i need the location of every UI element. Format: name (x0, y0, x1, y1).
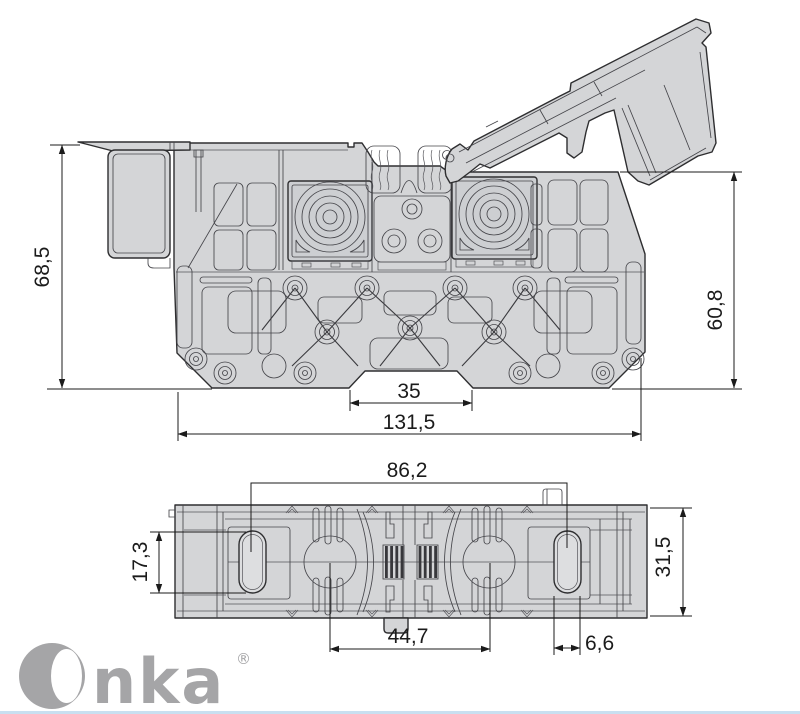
dim-text-hole-spacing: 86,2 (387, 459, 428, 482)
screenshot-page: 68,5 60,8 35 131,5 (0, 0, 800, 714)
right-coil-chamber (452, 177, 537, 267)
mounting-flange (78, 142, 190, 268)
top-latch-tab (543, 489, 562, 505)
plan-view: 86,2 17,3 31,5 44,7 6,6 (129, 459, 692, 655)
onka-logo-text: nka (92, 645, 225, 714)
dim-rail-notch: 35 (350, 380, 472, 411)
side-body-outline (174, 143, 645, 388)
onka-logo-mark (19, 643, 85, 709)
registered-trademark-icon: ® (236, 650, 251, 668)
dim-text-total-length: 131,5 (383, 411, 436, 434)
technical-drawing-canvas: 68,5 60,8 35 131,5 (0, 0, 800, 714)
onka-logo: nka ® (19, 643, 251, 714)
dim-text-slot-height: 17,3 (129, 542, 152, 583)
dim-text-total-width: 31,5 (652, 537, 675, 578)
dim-text-height-left: 68,5 (31, 247, 54, 288)
left-coil-chamber (288, 181, 372, 269)
side-view: 68,5 60,8 35 131,5 (31, 19, 742, 441)
dim-text-rail-notch: 35 (397, 380, 420, 403)
dim-text-slot-width: 6,6 (585, 632, 614, 655)
dim-total-width: 31,5 (650, 508, 692, 616)
dim-text-pad-spacing: 44,7 (388, 625, 429, 648)
dim-text-height-right: 60,8 (704, 290, 727, 331)
hinged-cover-open (445, 19, 716, 185)
